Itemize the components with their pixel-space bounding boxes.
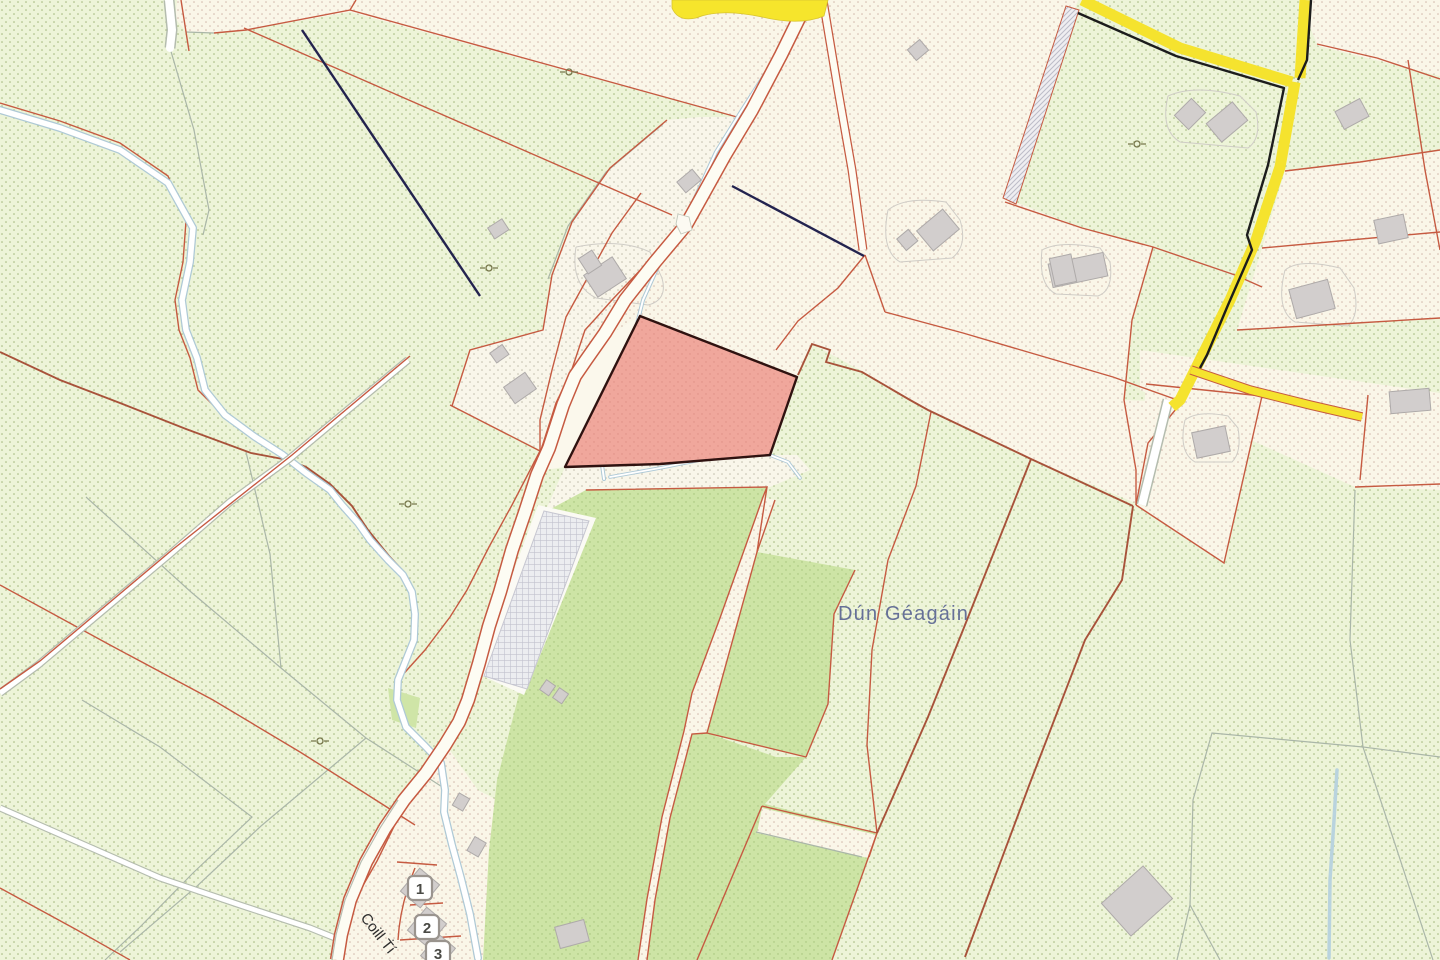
svg-text:1: 1 bbox=[416, 881, 424, 898]
svg-text:Dún Géagáin: Dún Géagáin bbox=[838, 603, 969, 625]
svg-text:2: 2 bbox=[423, 920, 431, 937]
svg-text:3: 3 bbox=[434, 946, 442, 960]
